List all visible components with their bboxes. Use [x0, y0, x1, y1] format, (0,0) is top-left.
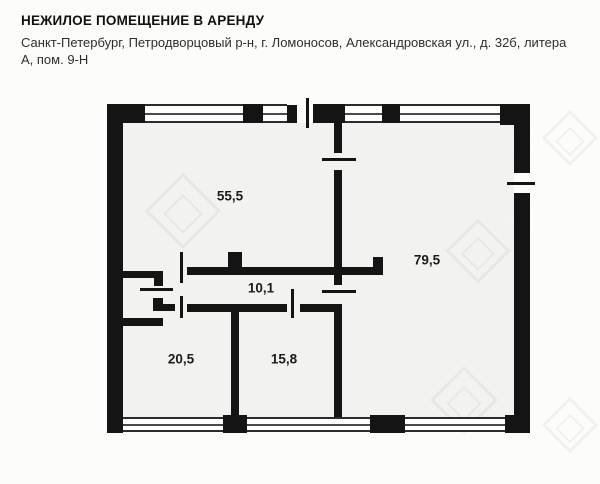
door-opening-tick [322, 158, 356, 161]
door-opening-tick [140, 288, 173, 291]
wall-pier-bottom [370, 415, 405, 433]
window [345, 104, 382, 123]
door-opening-tick [507, 182, 535, 185]
listing-address: Санкт-Петербург, Петродворцовый р-н, г. … [21, 34, 569, 68]
door-opening-tick [306, 98, 309, 128]
wall-pier-top [243, 104, 263, 123]
watermark-diamond [542, 397, 599, 454]
wall-nook-arm [153, 304, 175, 311]
listing-title: НЕЖИЛОЕ ПОМЕЩЕНИЕ В АРЕНДУ [21, 13, 264, 28]
wall-pier-bottom [223, 415, 247, 433]
wall-stub [228, 252, 242, 275]
wall-corridor-top [187, 267, 383, 275]
wall-right-lower [514, 193, 530, 433]
wall-pier-top [287, 105, 297, 123]
wall-left [107, 105, 123, 433]
wall-pier-top [382, 104, 400, 123]
wall-corridor-bottom [300, 304, 342, 312]
window [405, 417, 505, 432]
wall-corner-top-left [107, 104, 145, 123]
door-opening-tick [291, 289, 294, 318]
wall-right-upper [514, 105, 530, 173]
window [247, 417, 370, 432]
window [400, 104, 500, 123]
window [263, 104, 287, 123]
room-area-label: 79,5 [414, 253, 440, 268]
wall-end-cap [373, 257, 383, 275]
room-area-label: 15,8 [271, 352, 297, 367]
door-opening-tick [180, 296, 183, 318]
wall-pier-top [313, 104, 345, 123]
listing-floorplan-image: НЕЖИЛОЕ ПОМЕЩЕНИЕ В АРЕНДУ Санкт-Петербу… [0, 0, 600, 484]
window [123, 417, 223, 432]
room-area-label: 10,1 [248, 281, 274, 296]
wall-interior-vertical [334, 304, 342, 417]
wall-interior-vertical [334, 123, 342, 153]
watermark-diamond [542, 110, 599, 167]
door-opening-tick [180, 252, 183, 283]
wall-interior-vertical [231, 304, 239, 417]
room-area-label: 20,5 [168, 352, 194, 367]
wall-corner-bottom-right [505, 415, 530, 433]
wall-nook-tab [154, 271, 163, 286]
door-opening-tick [322, 290, 356, 293]
room-area-label: 55,5 [217, 189, 243, 204]
window [145, 104, 243, 123]
wall-nook-bottom [123, 318, 163, 326]
